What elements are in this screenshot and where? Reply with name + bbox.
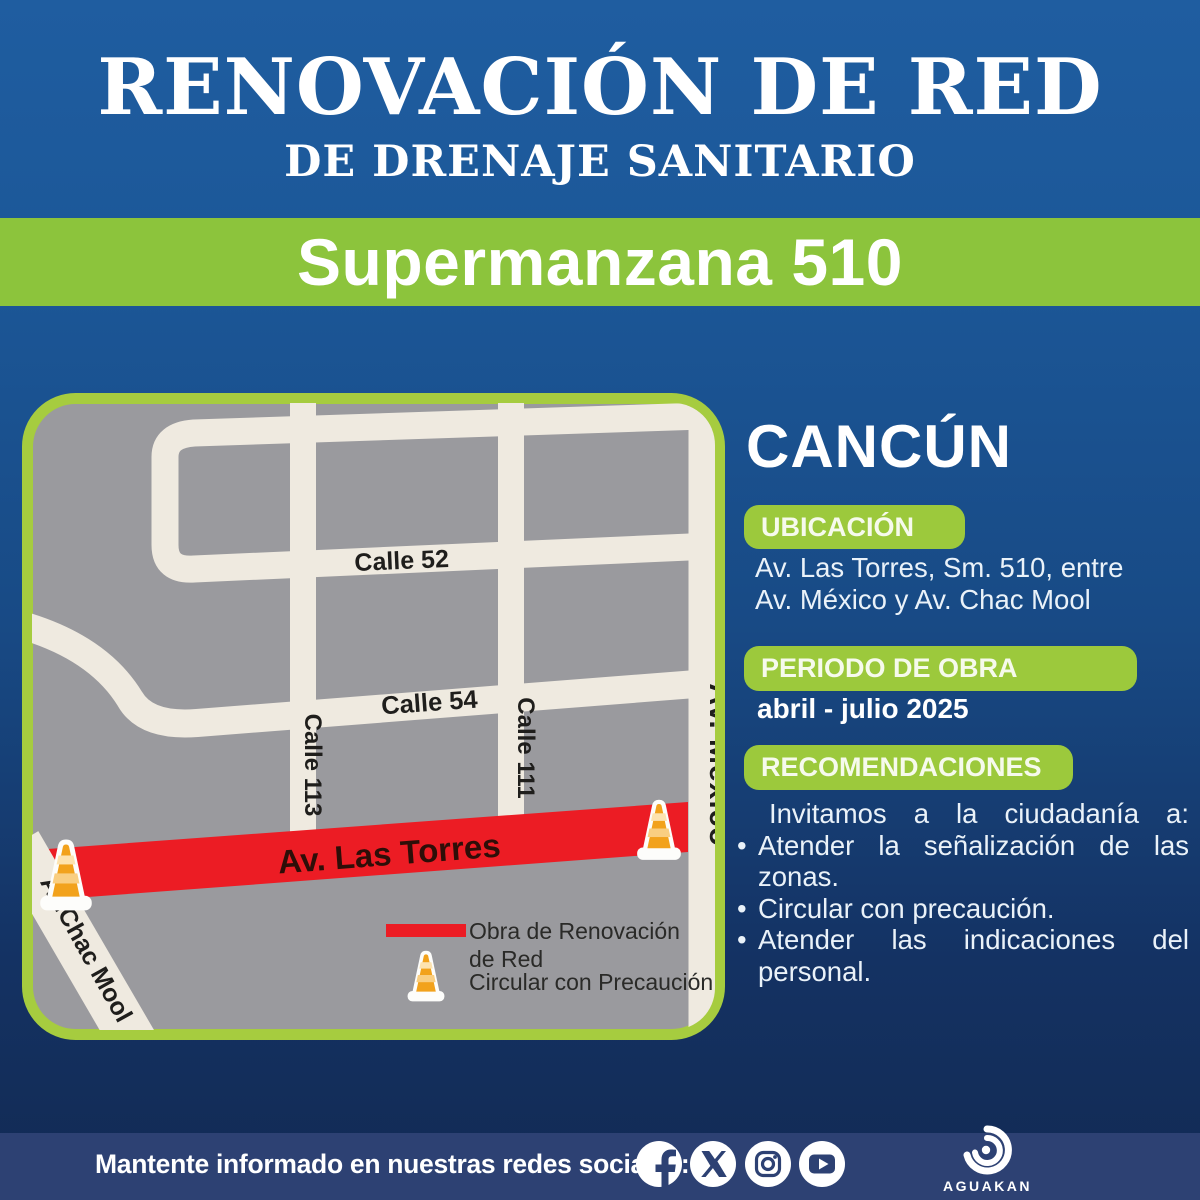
banner-supermanzana: Supermanzana 510 [0, 218, 1200, 306]
periodo-heading-pill: PERIODO DE OBRA [744, 646, 1137, 691]
label-calle-113: Calle 113 [299, 714, 326, 817]
x-twitter-icon[interactable] [690, 1141, 736, 1187]
legend-work-line1: Obra de Renovación [469, 918, 680, 944]
instagram-icon[interactable] [745, 1141, 791, 1187]
label-calle-111: Calle 111 [512, 697, 539, 798]
label-calle-52: Calle 52 [354, 545, 450, 577]
ubicacion-heading-pill: UBICACIÓN [744, 505, 965, 549]
ubicacion-line2: Av. México y Av. Chac Mool [755, 584, 1200, 616]
periodo-heading: PERIODO DE OBRA [761, 653, 1018, 683]
footer-message: Mantente informado en nuestras redes soc… [95, 1149, 689, 1180]
poster: RENOVACIÓN DE RED DE DRENAJE SANITARIO S… [0, 0, 1200, 1200]
youtube-icon[interactable] [799, 1141, 845, 1187]
legend-caution-label: Circular con Precaución [469, 969, 713, 995]
aguakan-logo-icon [958, 1124, 1016, 1176]
list-item: Atender la señalización de las zonas. [739, 830, 1189, 893]
aguakan-wordmark: AGUAKAN [930, 1178, 1045, 1194]
legend-work-swatch [386, 924, 466, 937]
periodo-value: abril - julio 2025 [757, 693, 969, 725]
list-item: Circular con precaución. [739, 893, 1189, 925]
recomendaciones-list: Atender la señalización de las zonas. Ci… [739, 830, 1189, 988]
recomendaciones-heading: RECOMENDACIONES [761, 752, 1042, 782]
page-subtitle: DE DRENAJE SANITARIO [0, 134, 1200, 190]
city-title: CANCÚN [746, 412, 1012, 481]
recomendaciones-block: Invitamos a la ciudadanía a: Atender la … [739, 798, 1189, 987]
recomendaciones-intro: Invitamos a la ciudadanía a: [739, 798, 1189, 830]
page-title: RENOVACIÓN DE RED [0, 40, 1200, 136]
ubicacion-heading: UBICACIÓN [761, 512, 914, 542]
recomendaciones-heading-pill: RECOMENDACIONES [744, 745, 1073, 790]
list-item: Atender las indicaciones del personal. [739, 924, 1189, 987]
banner-label: Supermanzana 510 [297, 225, 903, 299]
street-map: Calle 52 Calle 54 Calle 113 Calle 111 Av… [22, 393, 725, 1040]
facebook-icon[interactable] [636, 1141, 682, 1187]
ubicacion-line1: Av. Las Torres, Sm. 510, entre [755, 552, 1200, 584]
